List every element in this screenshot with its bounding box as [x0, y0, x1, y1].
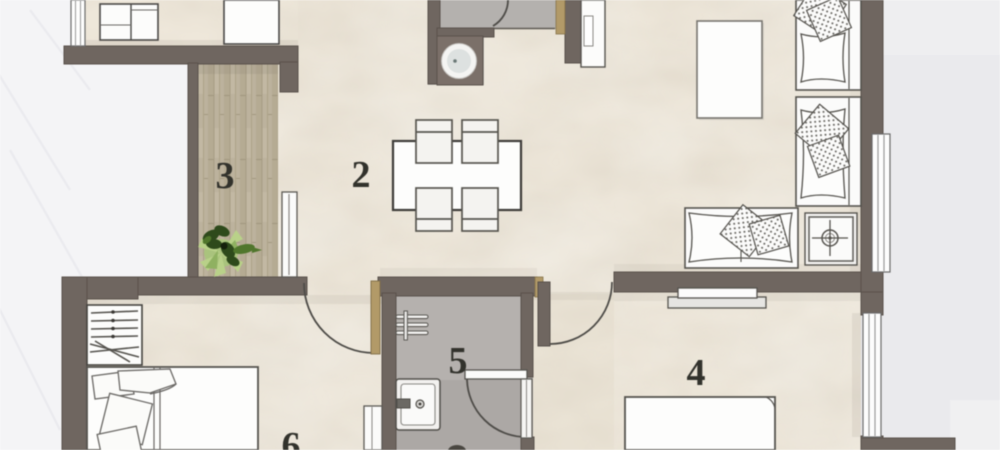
svg-text:6: 6 [282, 425, 301, 450]
svg-text:2: 2 [352, 154, 371, 196]
svg-text:4: 4 [687, 352, 706, 394]
svg-text:5: 5 [449, 340, 468, 382]
svg-text:3: 3 [216, 155, 235, 197]
